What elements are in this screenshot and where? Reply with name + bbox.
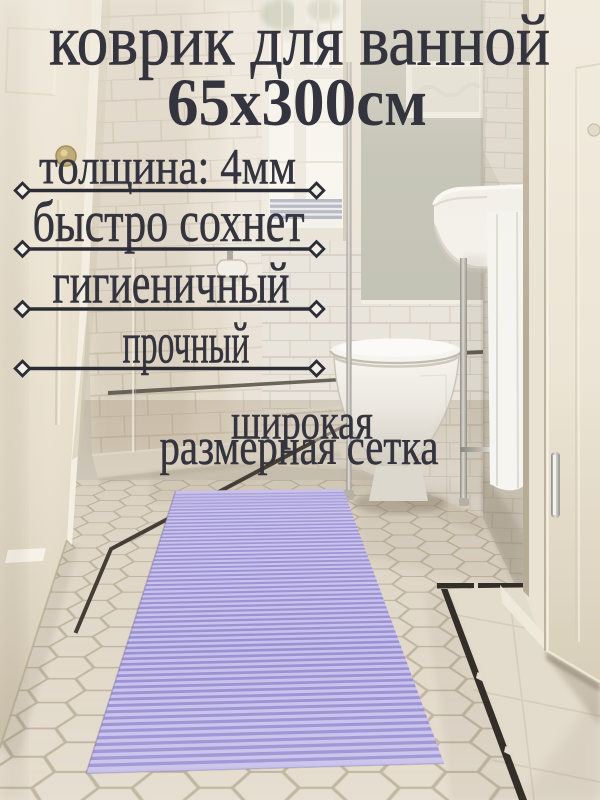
svg-text:толщина: 4мм: толщина: 4мм <box>39 140 296 196</box>
svg-text:быстро сохнет: быстро сохнет <box>33 189 305 254</box>
svg-text:размерная сетка: размерная сетка <box>160 419 439 476</box>
svg-text:прочный: прочный <box>123 311 250 376</box>
svg-text:65х300см: 65х300см <box>167 64 427 140</box>
svg-text:гигиеничный: гигиеничный <box>53 251 290 316</box>
